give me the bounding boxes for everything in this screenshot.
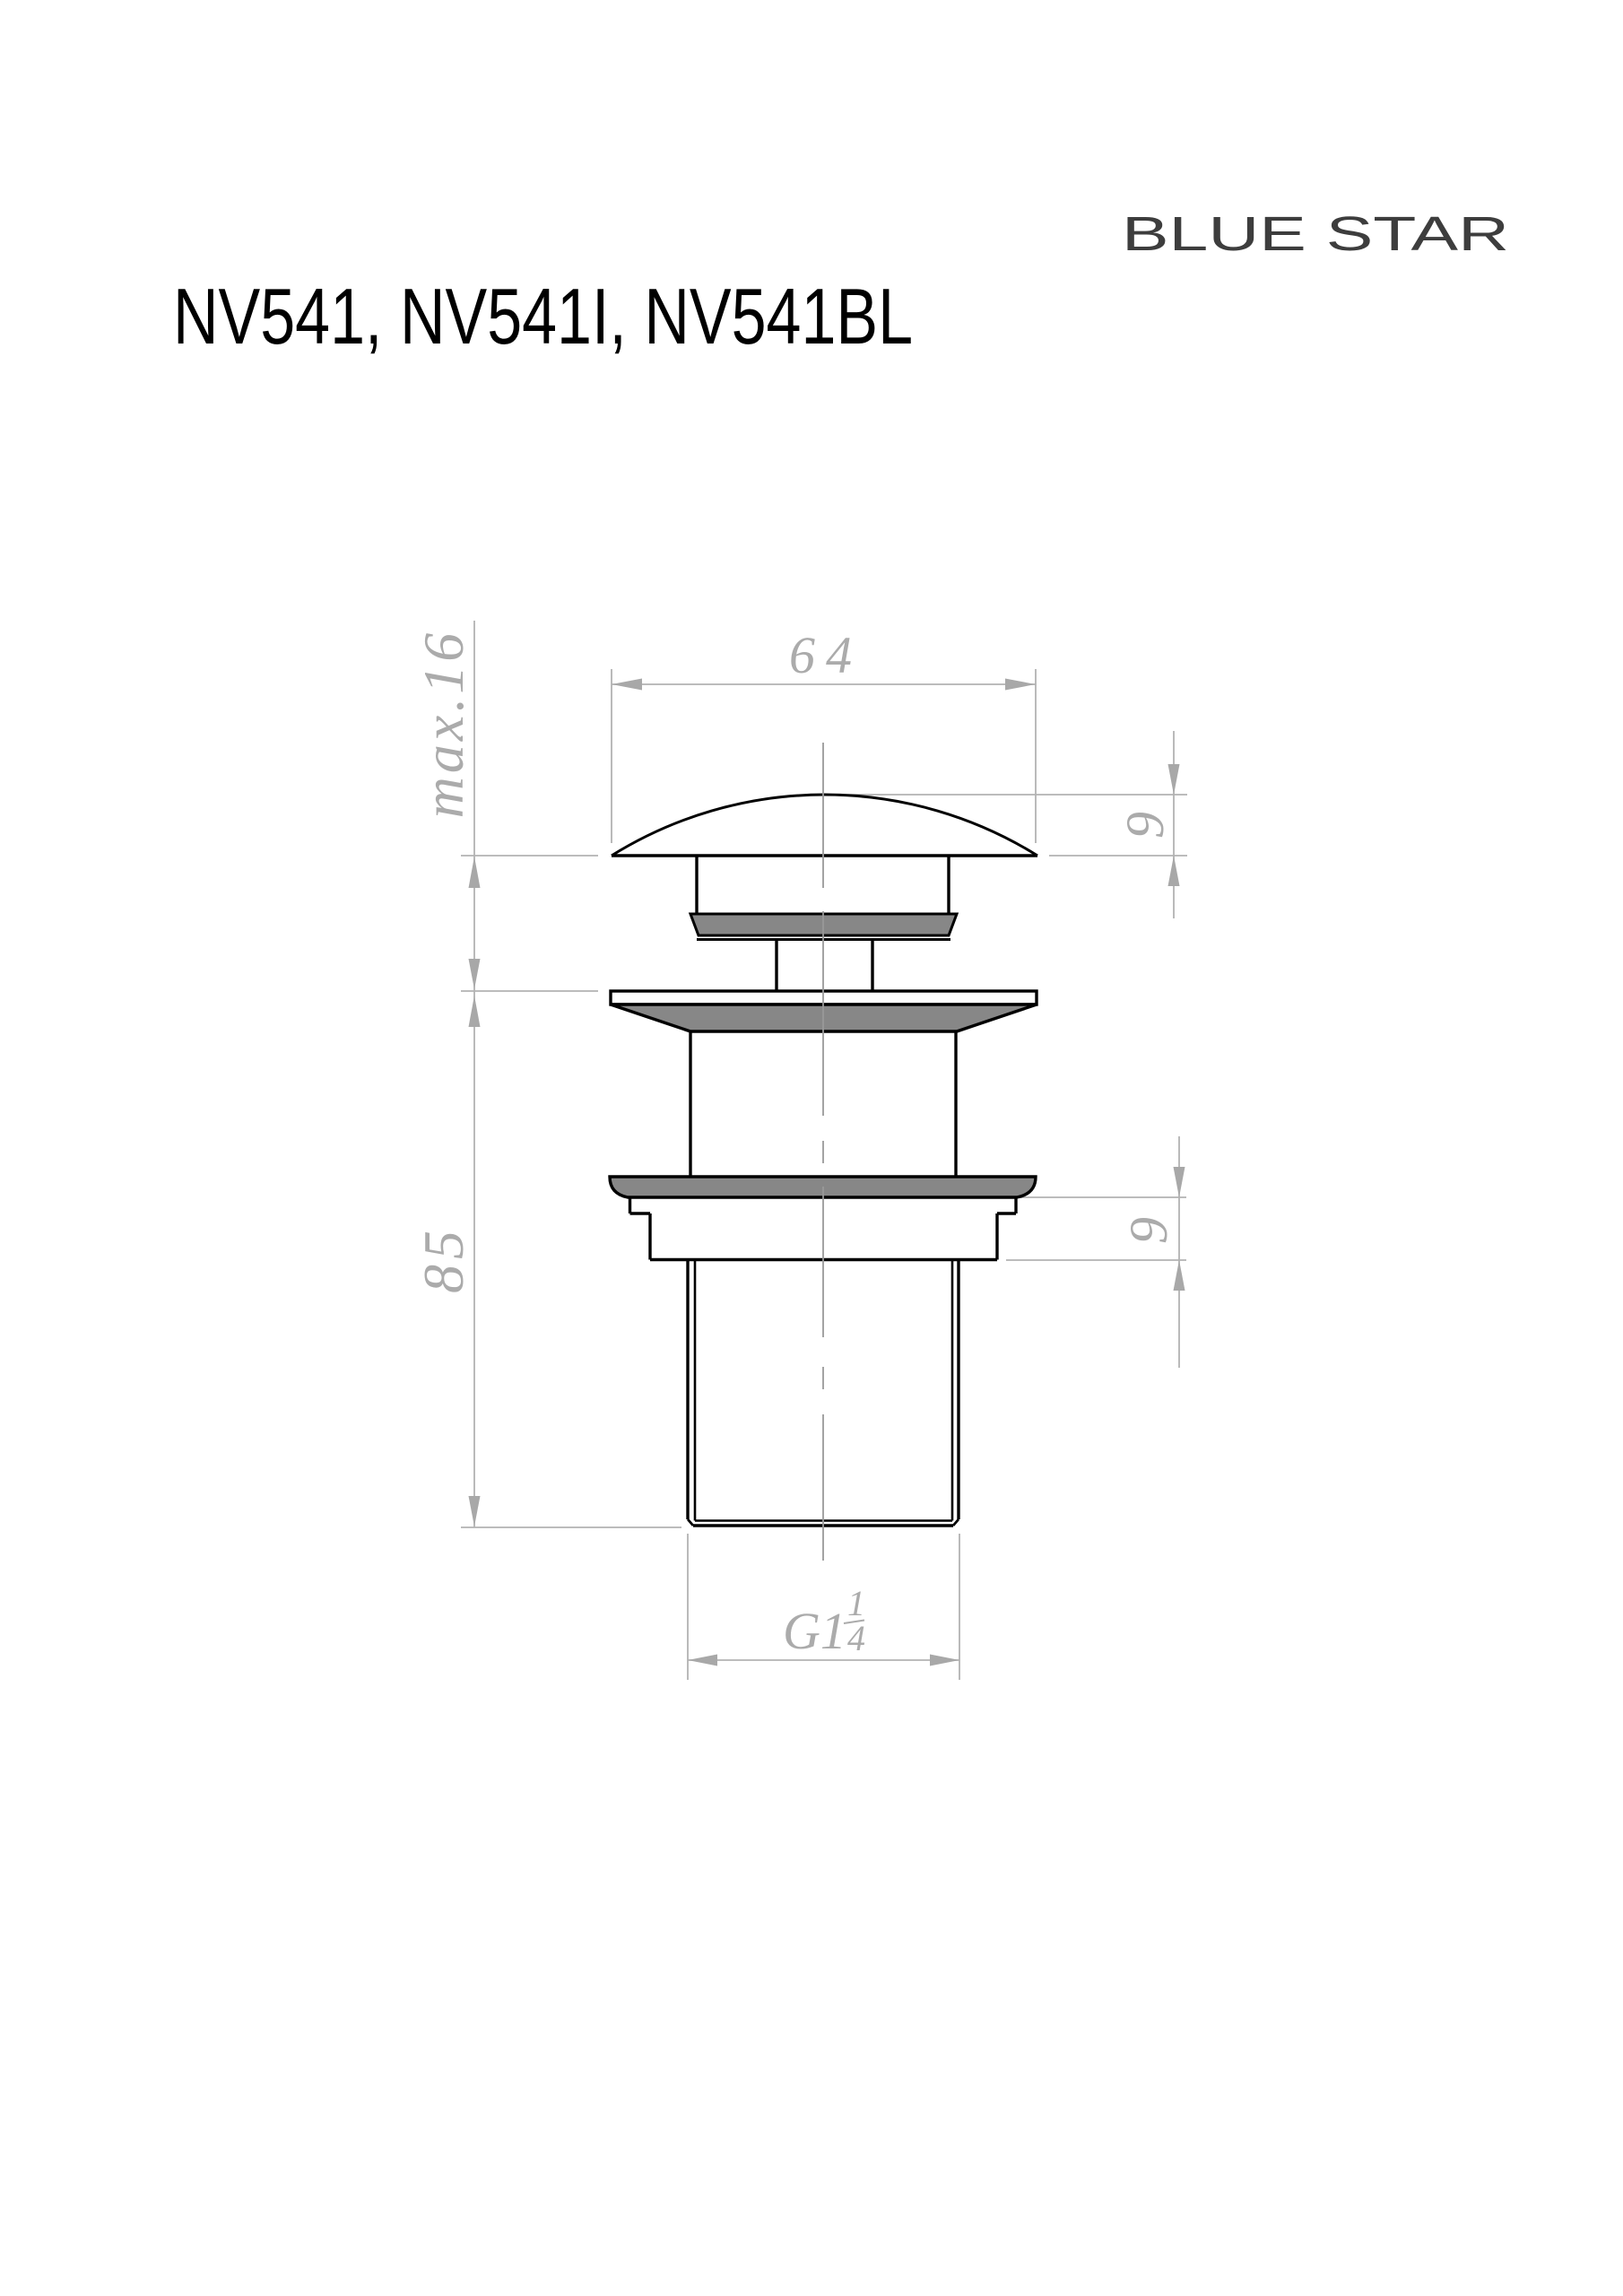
svg-text:max.16: max.16 — [412, 630, 475, 819]
svg-text:9: 9 — [1119, 1217, 1178, 1244]
svg-text:85: 85 — [412, 1225, 475, 1293]
svg-text:NV541, NV541I, NV541BL: NV541, NV541I, NV541BL — [173, 272, 913, 361]
svg-text:BLUE STAR: BLUE STAR — [1122, 207, 1509, 261]
svg-text:9: 9 — [1115, 812, 1175, 839]
svg-text:64: 64 — [789, 626, 863, 684]
svg-text:G1: G1 — [783, 1602, 846, 1660]
svg-text:4: 4 — [847, 1618, 865, 1658]
